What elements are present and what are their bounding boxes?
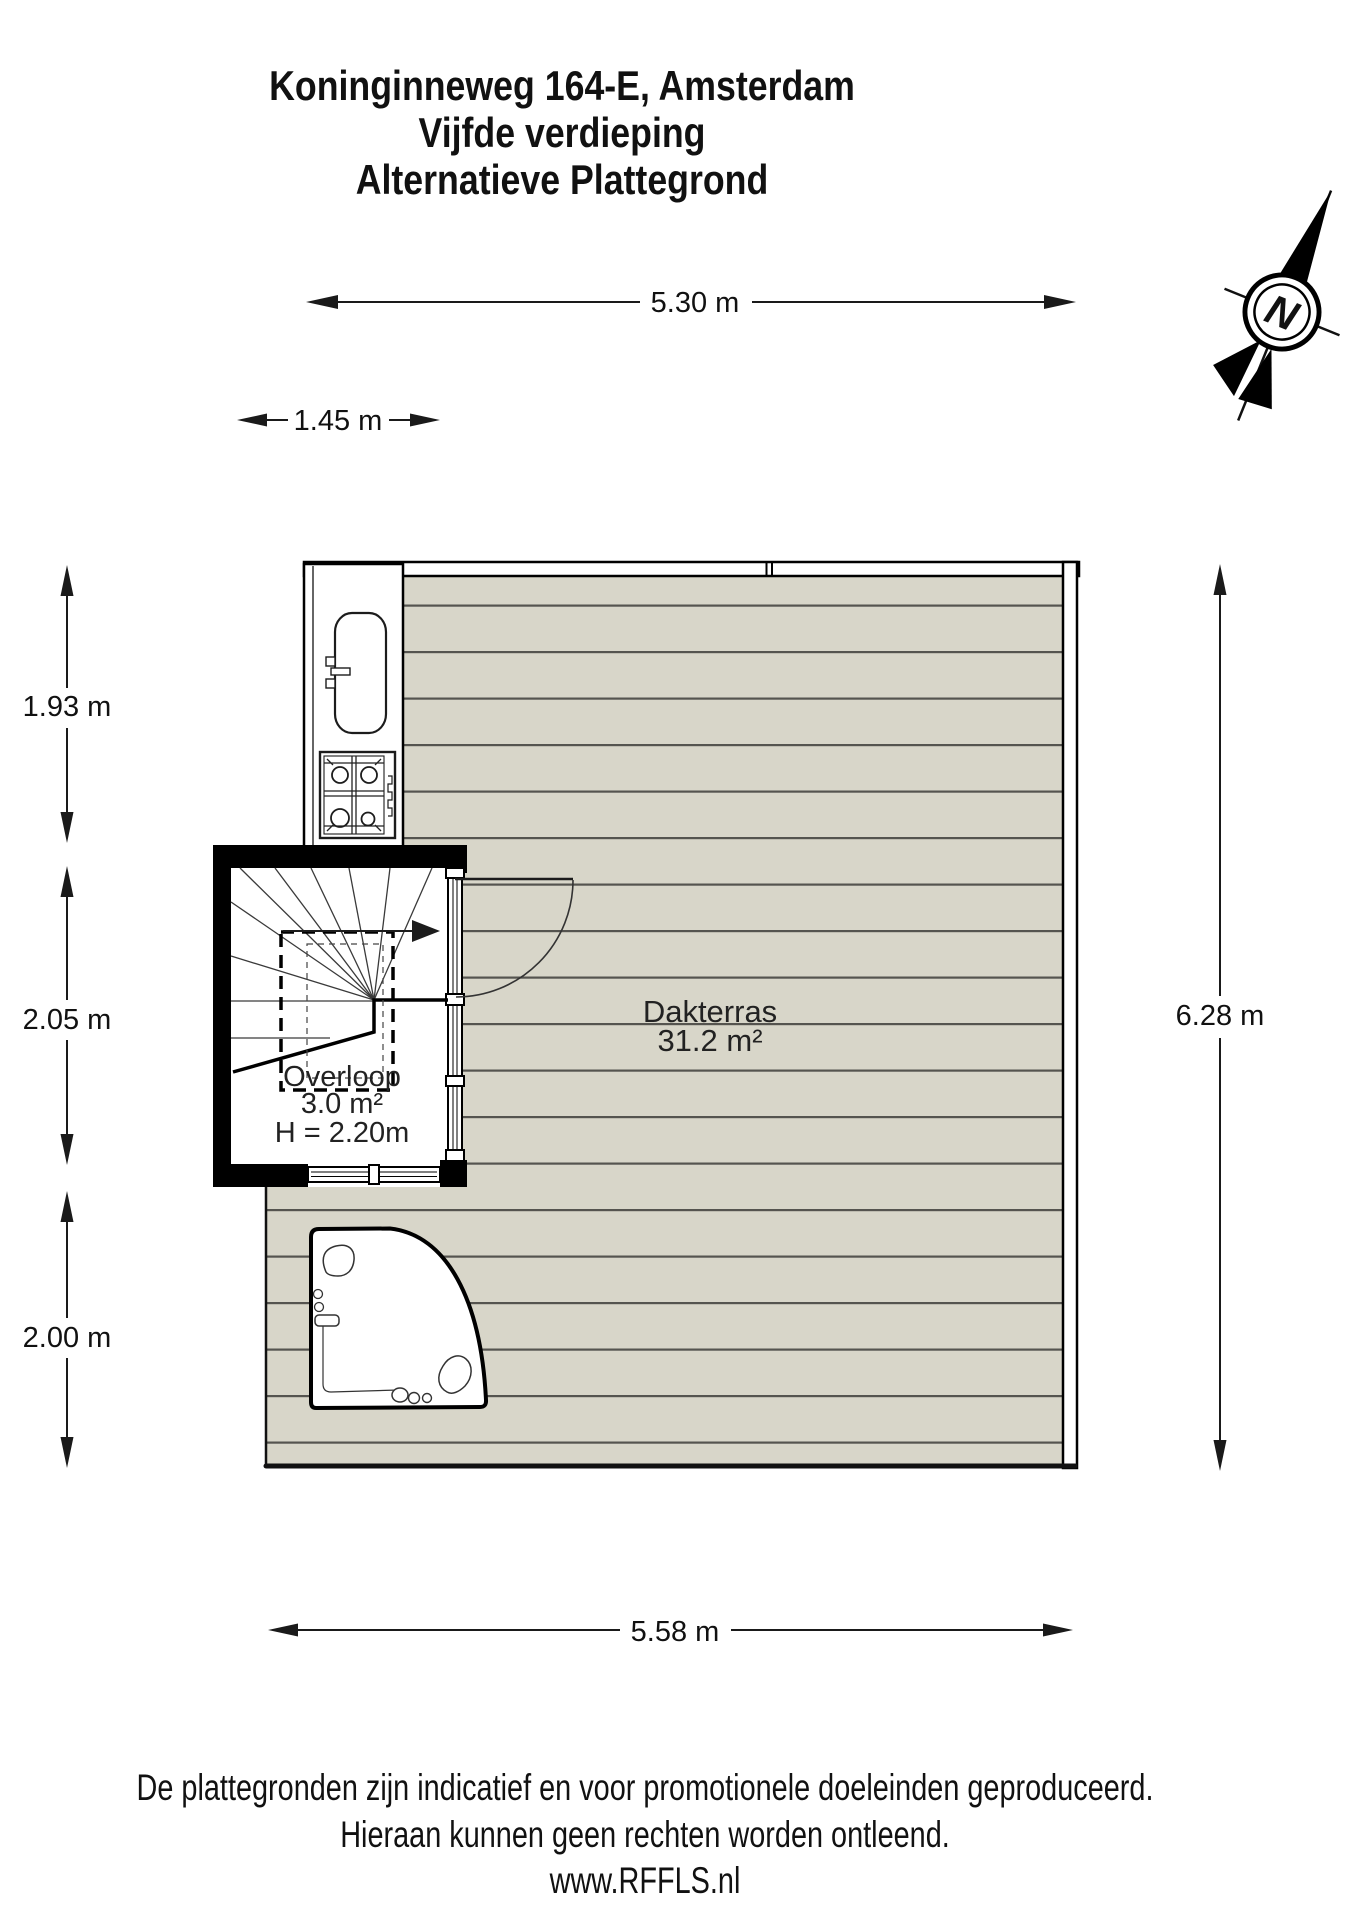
window-mullion — [446, 1150, 464, 1161]
headroom-dashed-line-inner — [307, 944, 383, 1078]
room-area-dakterras: 31.2 m² — [657, 1023, 762, 1058]
dim-label-right-height: 6.28 m — [1176, 1000, 1265, 1032]
room-height-overloop: H = 2.20m — [275, 1117, 410, 1149]
title-block: Koninginneweg 164-E, Amsterdam Vijfde ve… — [269, 63, 855, 203]
dim-label-left-middle: 2.05 m — [23, 1004, 112, 1036]
footer-disclaimer: De plattegronden zijn indicatief en voor… — [137, 1768, 1154, 1902]
page-title-floor: Vijfde verdieping — [419, 110, 706, 156]
footer-line-2: Hieraan kunnen geen rechten worden ontle… — [340, 1815, 950, 1856]
spiral-stairs — [231, 868, 432, 1038]
bathtub-icon — [326, 613, 386, 733]
footer-line-1: De plattegronden zijn indicatief en voor… — [137, 1768, 1154, 1809]
dim-label-left-bottom: 2.00 m — [23, 1322, 112, 1354]
bath-headrest-top — [323, 1245, 354, 1276]
dim-right-height: 6.28 m — [1176, 564, 1265, 1471]
wall-east — [1063, 562, 1077, 1468]
dim-label-top-width: 5.30 m — [651, 287, 740, 319]
window-mullion — [446, 994, 464, 1005]
dim-label-left-top: 1.93 m — [23, 691, 112, 723]
window-mullion — [446, 868, 464, 878]
dim-left-top: 1.93 m — [23, 565, 112, 843]
stove-icon — [320, 752, 395, 838]
dim-left-bottom: 2.00 m — [23, 1191, 112, 1468]
north-compass-icon: N — [1181, 167, 1358, 443]
bath-jet — [315, 1303, 324, 1312]
bath-drain — [392, 1388, 408, 1402]
stairwell-wall-bottom-right — [440, 1160, 467, 1187]
bath-faucet — [315, 1315, 339, 1326]
window-band-east — [446, 868, 464, 1161]
bath-drain-small — [409, 1393, 420, 1404]
footer-website: www.RFFLS.nl — [549, 1861, 741, 1902]
bath-jet — [314, 1290, 323, 1299]
stairwell-wall-bottom-left — [213, 1164, 308, 1187]
dim-bottom-width: 5.58 m — [268, 1616, 1073, 1648]
dim-left-middle: 2.05 m — [23, 866, 112, 1165]
dim-label-stairwell-width: 1.45 m — [294, 405, 383, 437]
wall-north — [304, 562, 1079, 576]
compass-north-point — [1281, 185, 1343, 284]
window-band-south — [308, 1165, 440, 1184]
dim-stairwell-width: 1.45 m — [237, 405, 440, 437]
bath-drain-small — [423, 1394, 432, 1403]
page-title-variant: Alternatieve Plattegrond — [356, 157, 769, 203]
stairwell-wall-top — [213, 845, 467, 868]
dim-label-bottom-width: 5.58 m — [631, 1616, 720, 1648]
page-title-address: Koninginneweg 164-E, Amsterdam — [269, 63, 855, 109]
stairs-direction-arrow — [283, 920, 440, 942]
window-mullion — [369, 1165, 379, 1184]
stairwell-wall-left — [213, 845, 231, 1187]
dim-top-width: 5.30 m — [306, 287, 1076, 319]
floor-plan-page: Koninginneweg 164-E, Amsterdam Vijfde ve… — [0, 0, 1358, 1920]
room-area-overloop: 3.0 m² — [301, 1088, 384, 1120]
bathroom-strip — [304, 564, 403, 849]
window-mullion — [446, 1076, 464, 1086]
